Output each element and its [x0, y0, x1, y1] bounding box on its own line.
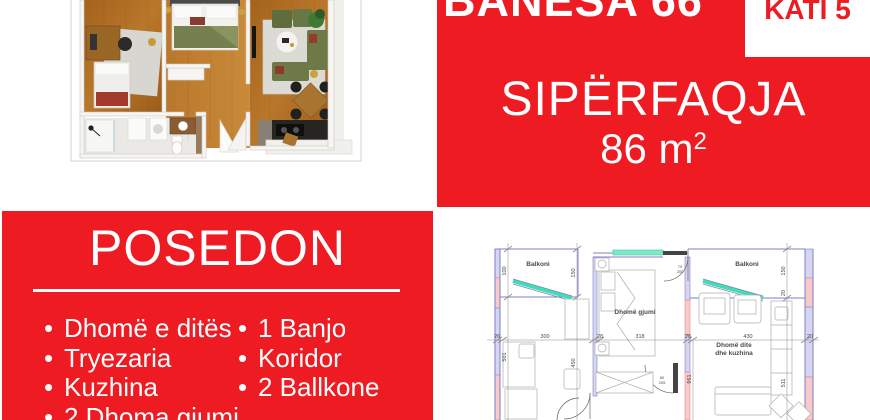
render-3d-section [0, 0, 435, 209]
dim-20-right: 20 [807, 334, 813, 340]
bullet: • [44, 373, 64, 403]
feature-item: •2 Dhoma gjumi [44, 403, 239, 420]
exterior-shadow [334, 0, 344, 150]
floorplan-2d-drawing: Balkoni Balkoni Dhomë gjumi Dhomë dite d… [437, 211, 870, 420]
features-title: POSEDON [2, 223, 433, 273]
feature-item: •Tryezaria [44, 344, 239, 374]
area-superscript: 2 [694, 128, 707, 155]
bullet: • [44, 403, 64, 420]
room-label-balcony-right: Balkoni [735, 261, 759, 268]
apartment-flyer: BANESA 66 KATI 5 SIPËRFAQJA 86 m2 POSEDO… [0, 0, 870, 420]
dim-150-left: 150 [571, 268, 577, 277]
header-section: BANESA 66 KATI 5 SIPËRFAQJA 86 m2 [437, 0, 870, 207]
dim-501: 501 [502, 352, 508, 361]
area-label: SIPËRFAQJA [437, 76, 870, 124]
features-list-left: •Dhomë e ditës •Tryezaria •Kuzhina •2 Dh… [44, 314, 239, 420]
bullet: • [238, 344, 258, 374]
dim-26-left: 26 [494, 334, 500, 340]
dim-28: 28 [597, 334, 603, 340]
floor-badge: KATI 5 [745, 0, 870, 57]
features-list-right: •1 Banjo •Koridor •2 Ballkone [238, 314, 379, 403]
room-label-living-2: dhe kuzhina [715, 350, 753, 357]
features-section: POSEDON •Dhomë e ditës •Tryezaria •Kuzhi… [2, 211, 433, 420]
feature-item: •1 Banjo [238, 314, 379, 344]
room-label-balcony-left: Balkoni [526, 261, 550, 268]
dim-300: 300 [540, 334, 549, 340]
dim-150-right: 150 [781, 266, 787, 275]
dim-26-mid: 26 [685, 334, 691, 340]
room-office [86, 26, 163, 108]
room-label-living-1: Dhomë dite [716, 342, 752, 349]
floor-badge-label: KATI 5 [764, 0, 851, 23]
bullet: • [238, 314, 258, 344]
apartment-title: BANESA 66 [443, 0, 703, 23]
dim-511: 511 [781, 379, 787, 388]
dim-318: 318 [635, 334, 644, 340]
floorplan-3d-render [70, 0, 362, 163]
room-label-bedroom: Dhomë gjumi [614, 309, 655, 316]
plan-2d-section: Balkoni Balkoni Dhomë gjumi Dhomë dite d… [437, 211, 870, 420]
dim-961: 961 [687, 374, 693, 383]
dim-20: 20 [781, 290, 787, 296]
dim-door-mid-h: 205 [659, 380, 666, 385]
feature-item: •2 Ballkone [238, 373, 379, 403]
bullet: • [44, 314, 64, 344]
feature-item: •Dhomë e ditës [44, 314, 239, 344]
dim-100: 100 [502, 266, 508, 275]
area-value: 86 m2 [437, 128, 870, 170]
dim-450: 450 [571, 358, 577, 367]
feature-item: •Koridor [238, 344, 379, 374]
bullet: • [44, 344, 64, 374]
feature-item: •Kuzhina [44, 373, 239, 403]
dim-430: 430 [743, 334, 752, 340]
dim-door-top-h: 200 [677, 269, 684, 274]
bullet: • [238, 373, 258, 403]
divider-line [33, 289, 400, 292]
